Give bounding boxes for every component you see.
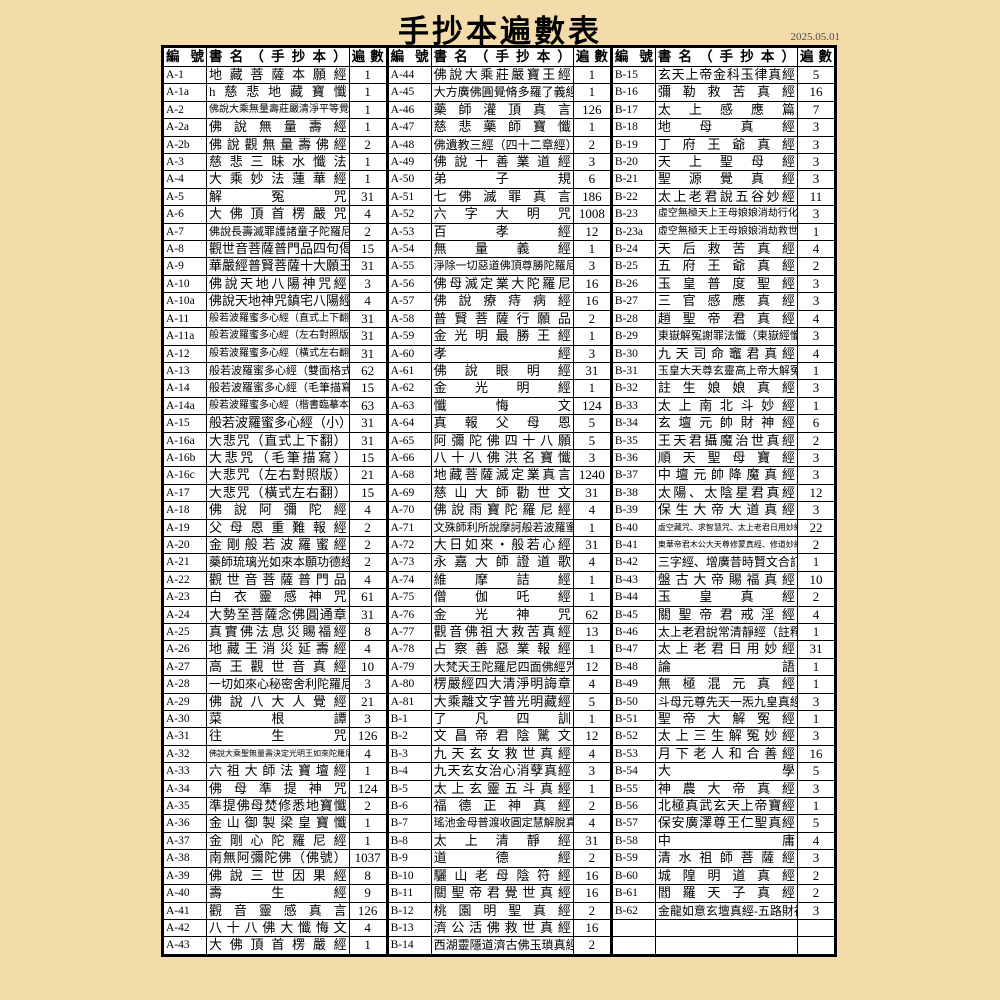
table-row: A-49佛說十善業道經3 (388, 154, 611, 171)
cell-name: 觀音靈感真言 (207, 902, 350, 919)
cell-id: A-78 (388, 641, 432, 658)
table-row: A-2a佛說無量壽經1 (164, 119, 387, 136)
table-row: B-37中壇元帥降魔真經3 (612, 467, 835, 484)
table-row: B-38太陽、太陰星君真經12 (612, 484, 835, 501)
cell-count: 4 (573, 676, 610, 693)
cell-count: 15 (349, 484, 386, 501)
table-row: B-20天上聖母經3 (612, 154, 835, 171)
cell-count: 10 (798, 571, 835, 588)
table-row: A-12般若波羅蜜多心經（橫式左右翻）31 (164, 345, 387, 362)
header-row: 編號書名（手抄本）遍數 (388, 48, 611, 67)
cell-id: A-45 (388, 84, 432, 101)
table-row: A-14般若波羅蜜多心經（毛筆描寫）15 (164, 380, 387, 397)
cell-count: 1 (573, 641, 610, 658)
table-row: A-80楞嚴經四大清淨明誨章4 (388, 676, 611, 693)
table-row: A-43大佛頂首楞嚴經1 (164, 937, 387, 954)
cell-name: 觀世音菩薩普門品 (207, 571, 350, 588)
table-row: B-30九天司命竈君真經4 (612, 345, 835, 362)
cell-count: 6 (573, 171, 610, 188)
cell-id: B-33 (612, 397, 656, 414)
cell-id: B-49 (612, 676, 656, 693)
cell-name: 太上感應篇 (655, 101, 797, 118)
cell-id: A-68 (388, 467, 432, 484)
cell-name: 太上南北斗妙經 (655, 397, 797, 414)
cell-name: 大乘妙法蓮華經 (207, 171, 350, 188)
table-row: A-41觀音靈感真言126 (164, 902, 387, 919)
table-row: B-52太上三生解冤妙經3 (612, 728, 835, 745)
cell-count: 31 (573, 536, 610, 553)
cell-name: h慈悲地藏寶懺 (207, 84, 350, 101)
cell-name: 佛說大乘莊嚴寶王經 (431, 67, 573, 84)
cell-id: A-73 (388, 554, 432, 571)
table-row: B-36順天聖母寶經3 (612, 449, 835, 466)
cell-count: 2 (349, 536, 386, 553)
table-row: A-70佛說雨寶陀羅尼經4 (388, 502, 611, 519)
cell-id: A-54 (388, 241, 432, 258)
cell-name: 月下老人和合善經 (655, 745, 797, 762)
cell-id: A-43 (164, 937, 207, 954)
cell-id: B-53 (612, 745, 656, 762)
cell-id: B-45 (612, 606, 656, 623)
cell-id: B-2 (388, 728, 432, 745)
cell-name: 玉皇普度聖經 (655, 275, 797, 292)
cell-name: 金光神咒 (431, 606, 573, 623)
cell-name: 般若波羅蜜多心經（毛筆描寫） (207, 380, 350, 397)
cell-count: 3 (798, 728, 835, 745)
cell-id: A-35 (164, 798, 207, 815)
cell-name: 金山御製梁皇寶懺 (207, 815, 350, 832)
cell-count: 126 (349, 728, 386, 745)
cell-name: 觀世音菩薩普門品四句偈 (207, 241, 350, 258)
table-row: B-3九天玄女救世真經4 (388, 745, 611, 762)
cell-count: 31 (349, 432, 386, 449)
table-row: A-71文殊師利所說摩訶般若波羅蜜經1 (388, 519, 611, 536)
cell-name: 準提佛母焚修悉地寶懺 (207, 798, 350, 815)
cell-id: B-30 (612, 345, 656, 362)
cell-name: 佛母準提神咒 (207, 780, 350, 797)
cell-name: 大悲咒（左右對照版） (207, 467, 350, 484)
cell-name: 濟公活佛救世真經 (431, 919, 573, 936)
cell-id: A-2b (164, 136, 207, 153)
table-row: A-51七佛滅罪真言186 (388, 188, 611, 205)
cell-count: 5 (798, 763, 835, 780)
table-row: B-43盤古大帝賜福真經10 (612, 571, 835, 588)
table-row: B-5太上玄靈五斗真經1 (388, 780, 611, 797)
table-row: A-15般若波羅蜜多心經（小）31 (164, 415, 387, 432)
table-row: B-39保生大帝大道真經3 (612, 502, 835, 519)
cell-name: 玄壇元帥財神經 (655, 415, 797, 432)
cell-name: 王天君攝魔治世真經 (655, 432, 797, 449)
cell-id: B-50 (612, 693, 656, 710)
cell-count: 4 (798, 310, 835, 327)
cell-id: A-72 (388, 536, 432, 553)
cell-name: 地母真經 (655, 119, 797, 136)
cell-count: 61 (349, 589, 386, 606)
table-row: B-16彌勒救苦真經16 (612, 84, 835, 101)
cell-id: A-48 (388, 136, 432, 153)
cell-count: 16 (798, 745, 835, 762)
table-row: A-53百孝經12 (388, 223, 611, 240)
cell-count: 1 (349, 154, 386, 171)
cell-name: 了凡四訓 (431, 711, 573, 728)
cell-count: 1 (349, 815, 386, 832)
cell-id: A-60 (388, 345, 432, 362)
cell-count: 2 (573, 310, 610, 327)
cell-name: 金光明經 (431, 380, 573, 397)
cell-count: 31 (349, 345, 386, 362)
cell-name: 般若波羅蜜多心經（直式上下翻） (207, 310, 350, 327)
table-row: A-13般若波羅蜜多心經（雙面格式）62 (164, 362, 387, 379)
cell-count: 1 (798, 798, 835, 815)
cell-count: 5 (573, 693, 610, 710)
cell-id: A-55 (388, 258, 432, 275)
table-row: A-55淨除一切惡道佛頂尊勝陀羅尼經3 (388, 258, 611, 275)
column-header-id: 編號 (388, 48, 432, 67)
cell-name: 佛說大乘無量壽莊嚴清淨平等覺經 (207, 101, 350, 118)
cell-name: 丁府王爺真經 (655, 136, 797, 153)
cell-id: B-32 (612, 380, 656, 397)
cell-id: B-31 (612, 362, 656, 379)
table-row: B-6福德正神真經2 (388, 798, 611, 815)
cell-count: 1 (573, 519, 610, 536)
cell-count: 62 (349, 362, 386, 379)
table-row: B-1了凡四訓1 (388, 711, 611, 728)
cell-count: 2 (573, 902, 610, 919)
cell-id: B-14 (388, 937, 432, 954)
table-row: A-68地藏菩薩滅定業真言1240 (388, 467, 611, 484)
cell-name: 金龍如意玄壇真經-五路財神 (655, 902, 797, 919)
cell-count: 126 (349, 902, 386, 919)
cell-name: 驪山老母陰符經 (431, 867, 573, 884)
table-row: B-59清水祖師菩薩經3 (612, 850, 835, 867)
cell-id: B-19 (612, 136, 656, 153)
cell-count: 62 (573, 606, 610, 623)
cell-name: 九天玄女救世真經 (431, 745, 573, 762)
cell-name: 瑤池金母普渡收圓定慧解脫真經 (431, 815, 573, 832)
table-row: A-52六字大明咒1008 (388, 206, 611, 223)
cell-id: A-25 (164, 624, 207, 641)
table-row: B-29東嶽解冤謝罪法懺（東嶽經懺）3 (612, 328, 835, 345)
cell-name: 彌勒救苦真經 (655, 84, 797, 101)
cell-id (612, 919, 656, 936)
cell-name: 懺悔文 (431, 397, 573, 414)
cell-count: 4 (349, 919, 386, 936)
table-row: B-47太上老君日用妙經31 (612, 641, 835, 658)
cell-id: A-40 (164, 885, 207, 902)
table-row: B-40虛空藏咒、求智慧咒、太上老君日用妙經22 (612, 519, 835, 536)
table-row: A-34佛母準提神咒124 (164, 780, 387, 797)
table-row: A-35準提佛母焚修悉地寶懺2 (164, 798, 387, 815)
cell-name: 桃園明聖真經 (431, 902, 573, 919)
cell-name: 無量義經 (431, 241, 573, 258)
cell-id: B-60 (612, 867, 656, 884)
cell-count: 4 (798, 345, 835, 362)
cell-id: A-53 (388, 223, 432, 240)
cell-count: 3 (798, 449, 835, 466)
cell-id: B-55 (612, 780, 656, 797)
cell-id: A-66 (388, 449, 432, 466)
cell-name: 七佛滅罪真言 (431, 188, 573, 205)
cell-count: 1 (798, 554, 835, 571)
table-row: A-74維摩詰經1 (388, 571, 611, 588)
table-row: B-56北極真武玄天上帝寶經1 (612, 798, 835, 815)
cell-id (612, 937, 656, 954)
cell-id: A-2 (164, 101, 207, 118)
cell-name: 保生大帝大道真經 (655, 502, 797, 519)
cell-count (798, 937, 835, 954)
cell-id: A-47 (388, 119, 432, 136)
cell-name: 普賢菩薩行願品 (431, 310, 573, 327)
cell-id: A-33 (164, 763, 207, 780)
table-row: A-16b大悲咒（毛筆描寫）15 (164, 449, 387, 466)
cell-id: B-12 (388, 902, 432, 919)
cell-id: A-17 (164, 484, 207, 501)
cell-name: 五府王爺真經 (655, 258, 797, 275)
cell-count: 13 (573, 624, 610, 641)
table-row: A-45大方廣佛圓覺脩多羅了義經1 (388, 84, 611, 101)
column-header-id: 編號 (612, 48, 656, 67)
cell-count: 3 (349, 275, 386, 292)
table-row: B-13濟公活佛救世真經16 (388, 919, 611, 936)
table-row: B-21聖源覺真經3 (612, 171, 835, 188)
cell-count: 3 (798, 467, 835, 484)
cell-name: 大佛頂首楞嚴咒 (207, 206, 350, 223)
cell-id: A-24 (164, 606, 207, 623)
cell-count: 4 (349, 641, 386, 658)
cell-name: 般若波羅蜜多心經（雙面格式） (207, 362, 350, 379)
table-row: B-11關聖帝君覺世真經16 (388, 885, 611, 902)
table-row: B-62金龍如意玄壇真經-五路財神3 (612, 902, 835, 919)
cell-count: 1240 (573, 467, 610, 484)
cell-count: 2 (573, 798, 610, 815)
cell-count: 1 (798, 362, 835, 379)
table-row: A-30菜根譚3 (164, 711, 387, 728)
cell-id: A-1a (164, 84, 207, 101)
cell-id: A-3 (164, 154, 207, 171)
table-row: B-31玉皇大天尊玄靈高上帝大解冤經1 (612, 362, 835, 379)
table-row: B-48論語1 (612, 658, 835, 675)
table-row: A-37金剛心陀羅尼經1 (164, 832, 387, 849)
cell-id: B-59 (612, 850, 656, 867)
table-row: A-59金光明最勝王經1 (388, 328, 611, 345)
column-header-id: 編號 (164, 48, 207, 67)
cell-id: A-10a (164, 293, 207, 310)
column-header-name: 書名（手抄本） (207, 48, 350, 67)
table-row: A-28一切如來心秘密舍利陀羅尼經3 (164, 676, 387, 693)
cell-count: 1 (349, 937, 386, 954)
table-row: B-55神農大帝真經3 (612, 780, 835, 797)
table-row: B-7瑤池金母普渡收圓定慧解脫真經4 (388, 815, 611, 832)
cell-id: A-77 (388, 624, 432, 641)
cell-name: 慈悲藥師寶懺 (431, 119, 573, 136)
cell-count: 3 (798, 136, 835, 153)
cell-name: 中庸 (655, 832, 797, 849)
cell-count: 3 (798, 171, 835, 188)
cell-count: 31 (573, 362, 610, 379)
cell-name: 聖帝大解冤經 (655, 711, 797, 728)
table-row: B-44玉皇真經2 (612, 589, 835, 606)
cell-count: 2 (349, 223, 386, 240)
table-row: B-23虛空無極天上王母娘娘消劫行化寶懺3 (612, 206, 835, 223)
cell-id: A-34 (164, 780, 207, 797)
table-row: B-33太上南北斗妙經1 (612, 397, 835, 414)
cell-id: B-44 (612, 589, 656, 606)
table-row: A-9華嚴經普賢菩薩十大願王31 (164, 258, 387, 275)
cell-id: A-46 (388, 101, 432, 118)
table-row: A-78占察善惡業報經1 (388, 641, 611, 658)
table-row: A-75僧伽吒經1 (388, 589, 611, 606)
table-row: B-58中庸4 (612, 832, 835, 849)
cell-id: A-62 (388, 380, 432, 397)
table-row: A-36金山御製梁皇寶懺1 (164, 815, 387, 832)
cell-id: A-11 (164, 310, 207, 327)
cell-id: B-22 (612, 188, 656, 205)
cell-name: 中壇元帥降魔真經 (655, 467, 797, 484)
table-row: B-32註生娘娘真經3 (612, 380, 835, 397)
cell-name: 南無阿彌陀佛（佛號） (207, 850, 350, 867)
cell-count: 3 (573, 763, 610, 780)
cell-name: 東華帝君木公大天尊修蒙真經、修道妙經 (655, 536, 797, 553)
cell-name: 真實佛法息災賜福經 (207, 624, 350, 641)
cell-id: A-29 (164, 693, 207, 710)
cell-count: 10 (349, 658, 386, 675)
table-row: A-21藥師琉璃光如來本願功德經2 (164, 554, 387, 571)
cell-id: A-22 (164, 571, 207, 588)
cell-count: 1 (573, 328, 610, 345)
cell-name: 藥師琉璃光如來本願功德經 (207, 554, 350, 571)
cell-id: B-54 (612, 763, 656, 780)
cell-name: 大乘離文字普光明藏經 (431, 693, 573, 710)
cell-count: 124 (573, 397, 610, 414)
cell-count: 3 (798, 293, 835, 310)
cell-count: 16 (573, 275, 610, 292)
header-row: 編號書名（手抄本）遍數 (164, 48, 387, 67)
cell-count: 5 (573, 415, 610, 432)
cell-name: 太陽、太陰星君真經 (655, 484, 797, 501)
cell-name: 虛空無極天上王母娘娘消劫救世寶懺 (655, 223, 797, 240)
cell-name: 六字大明咒 (431, 206, 573, 223)
cell-name: 占察善惡業報經 (431, 641, 573, 658)
cell-name: 大日如來・般若心經 (431, 536, 573, 553)
cell-id: A-51 (388, 188, 432, 205)
cell-id: B-15 (612, 67, 656, 84)
table-row: B-42三字經、增廣昔時賢文合訂本1 (612, 554, 835, 571)
cell-id: A-64 (388, 415, 432, 432)
table-row: B-41東華帝君木公大天尊修蒙真經、修道妙經2 (612, 536, 835, 553)
cell-count: 31 (349, 328, 386, 345)
cell-id: B-20 (612, 154, 656, 171)
cell-count: 3 (798, 780, 835, 797)
table-row: A-26地藏王消災延壽經4 (164, 641, 387, 658)
table-row: A-77觀音佛祖大救苦真經13 (388, 624, 611, 641)
table-row: B-26玉皇普度聖經3 (612, 275, 835, 292)
cell-id: A-27 (164, 658, 207, 675)
cell-name: 八十八佛大懺悔文 (207, 919, 350, 936)
table-row: A-62金光明經1 (388, 380, 611, 397)
table-row: A-6大佛頂首楞嚴咒4 (164, 206, 387, 223)
cell-count: 11 (798, 188, 835, 205)
cell-id: B-18 (612, 119, 656, 136)
cell-id: B-4 (388, 763, 432, 780)
table-row: A-31往生咒126 (164, 728, 387, 745)
cell-name: 維摩詰經 (431, 571, 573, 588)
cell-count: 15 (349, 241, 386, 258)
cell-name: 地藏王消災延壽經 (207, 641, 350, 658)
cell-count: 5 (798, 67, 835, 84)
cell-count: 1 (573, 589, 610, 606)
cell-name: 福德正神真經 (431, 798, 573, 815)
cell-count: 1037 (349, 850, 386, 867)
cell-count: 63 (349, 397, 386, 414)
cell-id: B-41 (612, 536, 656, 553)
table-row: A-27高王觀世音真經10 (164, 658, 387, 675)
cell-name: 無極混元真經 (655, 676, 797, 693)
cell-count: 16 (573, 867, 610, 884)
cell-id: A-5 (164, 188, 207, 205)
cell-id: A-65 (388, 432, 432, 449)
cell-id: B-26 (612, 275, 656, 292)
cell-id: B-46 (612, 624, 656, 641)
cell-id: A-70 (388, 502, 432, 519)
table-row: A-2b佛說觀無量壽佛經2 (164, 136, 387, 153)
cell-count: 4 (573, 745, 610, 762)
cell-count: 16 (573, 293, 610, 310)
cell-id: B-7 (388, 815, 432, 832)
table-row: B-12桃園明聖真經2 (388, 902, 611, 919)
cell-id: A-79 (388, 658, 432, 675)
cell-name: 金光明最勝王經 (431, 328, 573, 345)
cell-name: 金剛般若波羅蜜經 (207, 536, 350, 553)
cell-id: A-23 (164, 589, 207, 606)
cell-count: 1 (798, 658, 835, 675)
cell-count: 21 (349, 693, 386, 710)
cell-name: 九天玄女治心消孽真經 (431, 763, 573, 780)
table-row: A-2佛說大乘無量壽莊嚴清淨平等覺經1 (164, 101, 387, 118)
table-row: B-17太上感應篇7 (612, 101, 835, 118)
cell-count: 22 (798, 519, 835, 536)
cell-count: 4 (349, 502, 386, 519)
cell-count: 2 (798, 867, 835, 884)
cell-name: 北極真武玄天上帝寶經 (655, 798, 797, 815)
cell-count: 1 (349, 101, 386, 118)
table-row: B-54大學5 (612, 763, 835, 780)
cell-name: 佛說阿彌陀經 (207, 502, 350, 519)
cell-id: A-59 (388, 328, 432, 345)
cell-count: 12 (798, 484, 835, 501)
table-row: B-10驪山老母陰符經16 (388, 867, 611, 884)
cell-count: 31 (349, 606, 386, 623)
cell-count: 21 (349, 467, 386, 484)
table-row: A-38南無阿彌陀佛（佛號）1037 (164, 850, 387, 867)
cell-name: 永嘉大師證道歌 (431, 554, 573, 571)
cell-name: 地藏菩薩滅定業真言 (431, 467, 573, 484)
cell-id: A-41 (164, 902, 207, 919)
cell-count: 4 (798, 606, 835, 623)
table-row: A-3慈悲三昧水懺法1 (164, 154, 387, 171)
cell-id: A-11a (164, 328, 207, 345)
cell-count: 186 (573, 188, 610, 205)
cell-count: 5 (798, 815, 835, 832)
cell-count: 2 (349, 554, 386, 571)
table-row: B-18地母真經3 (612, 119, 835, 136)
cell-id: A-31 (164, 728, 207, 745)
table-row: B-25五府王爺真經2 (612, 258, 835, 275)
cell-name: 僧伽吒經 (431, 589, 573, 606)
table-row: A-69慈山大師勸世文31 (388, 484, 611, 501)
cell-name: 孝經 (431, 345, 573, 362)
cell-name: 佛母滅定業大陀羅尼 (431, 275, 573, 292)
cell-name: 虛空藏咒、求智慧咒、太上老君日用妙經 (655, 519, 797, 536)
